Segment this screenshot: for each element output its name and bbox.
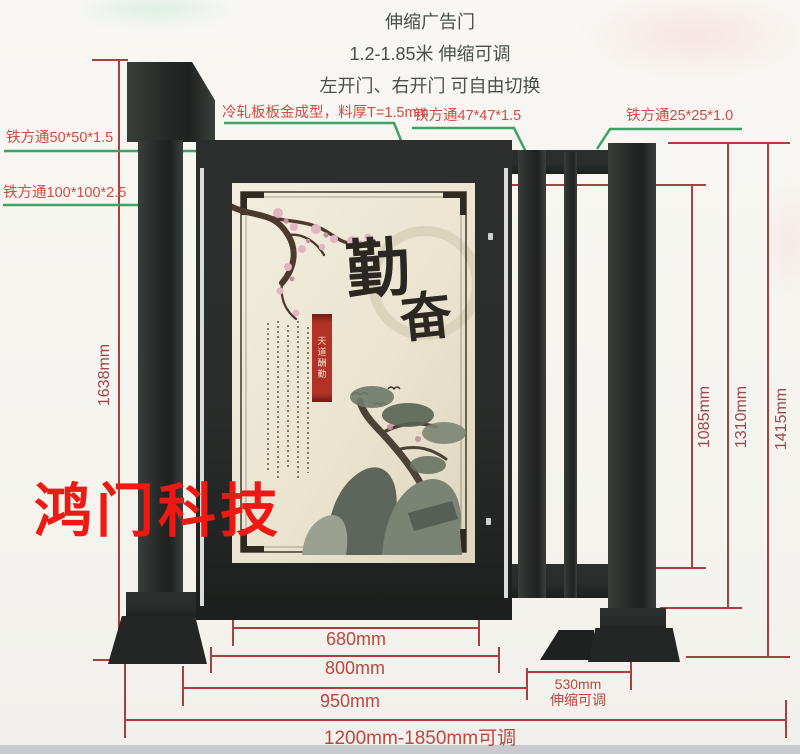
dim-frame-height: 1415mm [773,364,793,474]
dim-panel-width: 950mm [300,691,400,712]
dim-tele-value: 530mm [528,676,628,692]
dim-tele-width: 530mm 伸缩可调 [528,676,628,708]
page-title: 伸缩广告门 1.2-1.85米 伸缩可调 左开门、右开门 可自由切换 [230,6,630,102]
right-post-base [588,628,680,662]
door-lock-bottom [486,518,491,525]
left-post-base [108,616,207,664]
dim-post-height: 1310mm [733,362,753,472]
dim-poster-width: 680mm [306,629,406,650]
product-diagram: 勤 奋 天道酬勤 伸缩广告门 1.2-1.85米 伸缩可调 左开门、右开门 可自… [0,0,800,754]
watermark: 鸿门科技 [34,464,334,548]
dim-total-height: 1638mm [96,320,116,430]
calligraphy-fen: 奋 [397,289,454,346]
dim-door-width: 800mm [305,658,405,679]
title-line2: 1.2-1.85米 伸缩可调 [230,38,630,70]
telescopic-upright-25 [564,152,577,598]
left-post-base-top [126,592,203,618]
callout-cold-rolled: 冷轧板板金成型，料厚T=1.5mm [222,101,429,122]
dim-total-width: 1200mm-1850mm可调 [300,723,540,750]
door-right-highlight [504,168,508,598]
title-line3: 左开门、右开门 可自由切换 [230,70,630,102]
red-seal-banner: 天道酬勤 [312,314,332,402]
right-post [608,143,656,613]
telescopic-upright-47 [518,150,546,598]
callout-tube47: 铁方通47*47*1.5 [414,104,521,125]
callout-tube50: 铁方通50*50*1.5 [6,126,113,147]
dim-inner-height: 1085mm [696,362,716,472]
door-lock-top [488,233,493,240]
title-line1: 伸缩广告门 [230,6,630,38]
dim-tele-note: 伸缩可调 [528,692,628,708]
banner-text: 天道酬勤 [316,336,329,380]
callout-tube25: 铁方通25*25*1.0 [626,104,733,125]
callout-tube100: 铁方通100*100*2.5 [3,181,126,202]
